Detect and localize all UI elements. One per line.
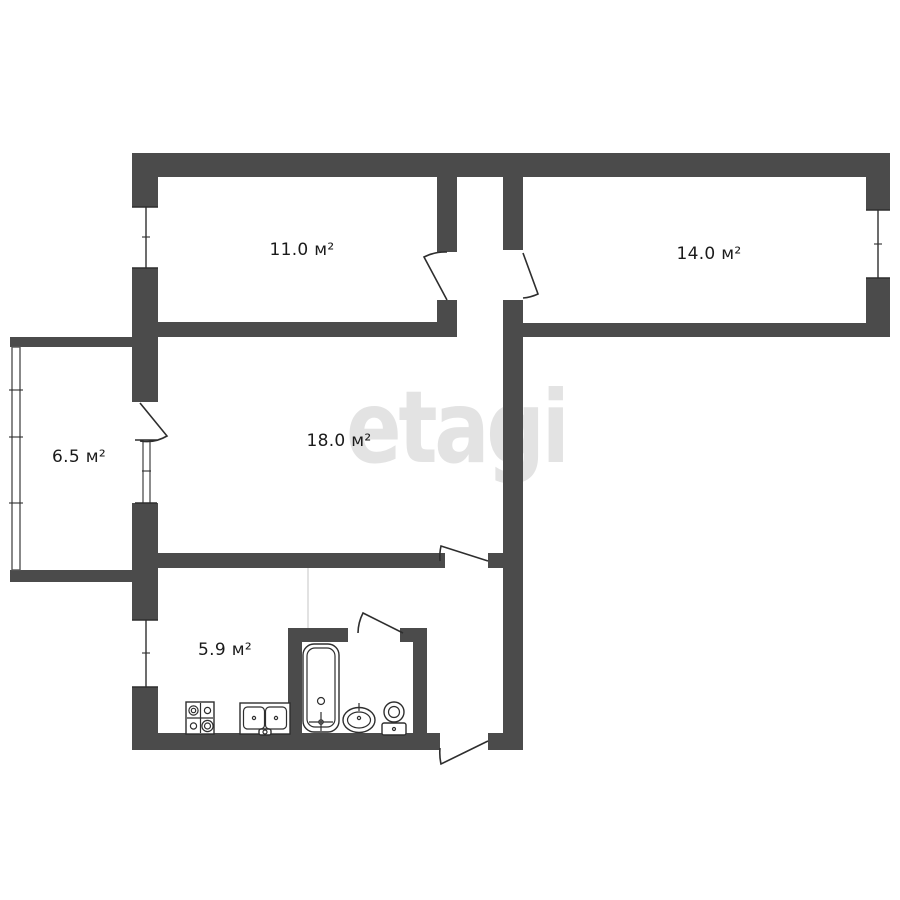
toilet-icon (382, 702, 406, 735)
door-bedroom-2 (523, 253, 538, 298)
window-kitchen (132, 620, 158, 687)
window-balcony-block (135, 440, 157, 503)
door-living-hall (440, 546, 488, 561)
area-label-balcony: 6.5 м² (52, 447, 106, 467)
door-bathroom (358, 613, 403, 633)
area-label-living-room: 18.0 м² (307, 431, 372, 451)
door-entrance (440, 741, 488, 764)
window-bedroom-1 (132, 207, 158, 268)
area-label-bedroom-2: 14.0 м² (677, 244, 742, 264)
floorplan-canvas (0, 0, 900, 900)
area-label-kitchen: 5.9 м² (198, 640, 252, 660)
bathtub-icon (303, 644, 339, 732)
washbasin-icon (343, 703, 375, 733)
door-balcony (140, 403, 167, 442)
stove-icon (186, 702, 214, 734)
area-label-bedroom-1: 11.0 м² (270, 240, 335, 260)
floor-plan: etagi (0, 0, 900, 900)
balcony-glazing (9, 347, 23, 570)
door-bedroom-1 (424, 252, 447, 300)
window-bedroom-2 (866, 210, 890, 278)
kitchen-sink-icon (240, 703, 290, 735)
